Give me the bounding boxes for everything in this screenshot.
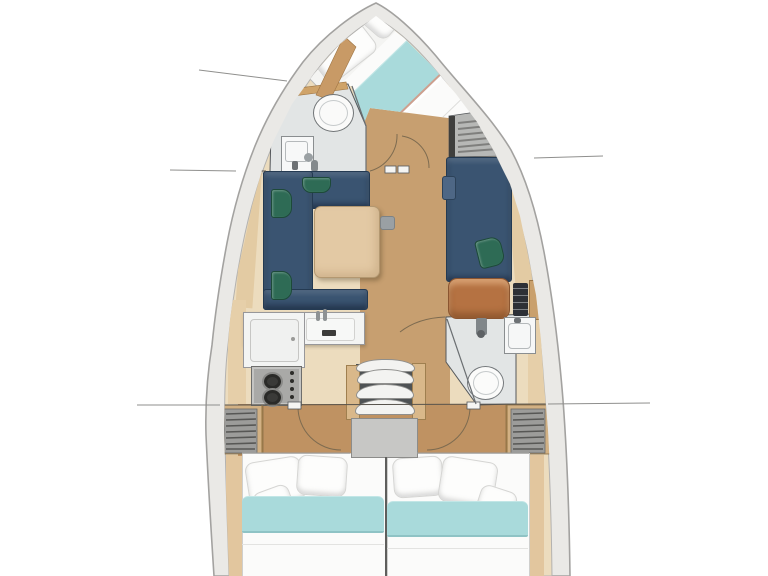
leader-line-mid-starboard: [534, 156, 603, 158]
leader-line-mid-port: [170, 170, 236, 171]
aft-cabin-starboard-door-arc: [427, 407, 470, 450]
shower-glass-lines: [352, 86, 476, 404]
aft-bathroom-glass: [447, 319, 476, 404]
aft-bathroom-door-arc: [400, 317, 445, 332]
aft-cabin-port-door-arc: [298, 407, 341, 450]
door-sills: [288, 166, 480, 409]
yacht-floor-plan: [0, 0, 768, 576]
aft-bulkhead-line: [220, 404, 548, 405]
bow-cabin-door-arc: [370, 134, 397, 171]
forward-bathroom-glass: [352, 86, 366, 171]
leader-line-bow-port: [199, 70, 287, 81]
bow-cabin-door-arc: [402, 136, 429, 168]
